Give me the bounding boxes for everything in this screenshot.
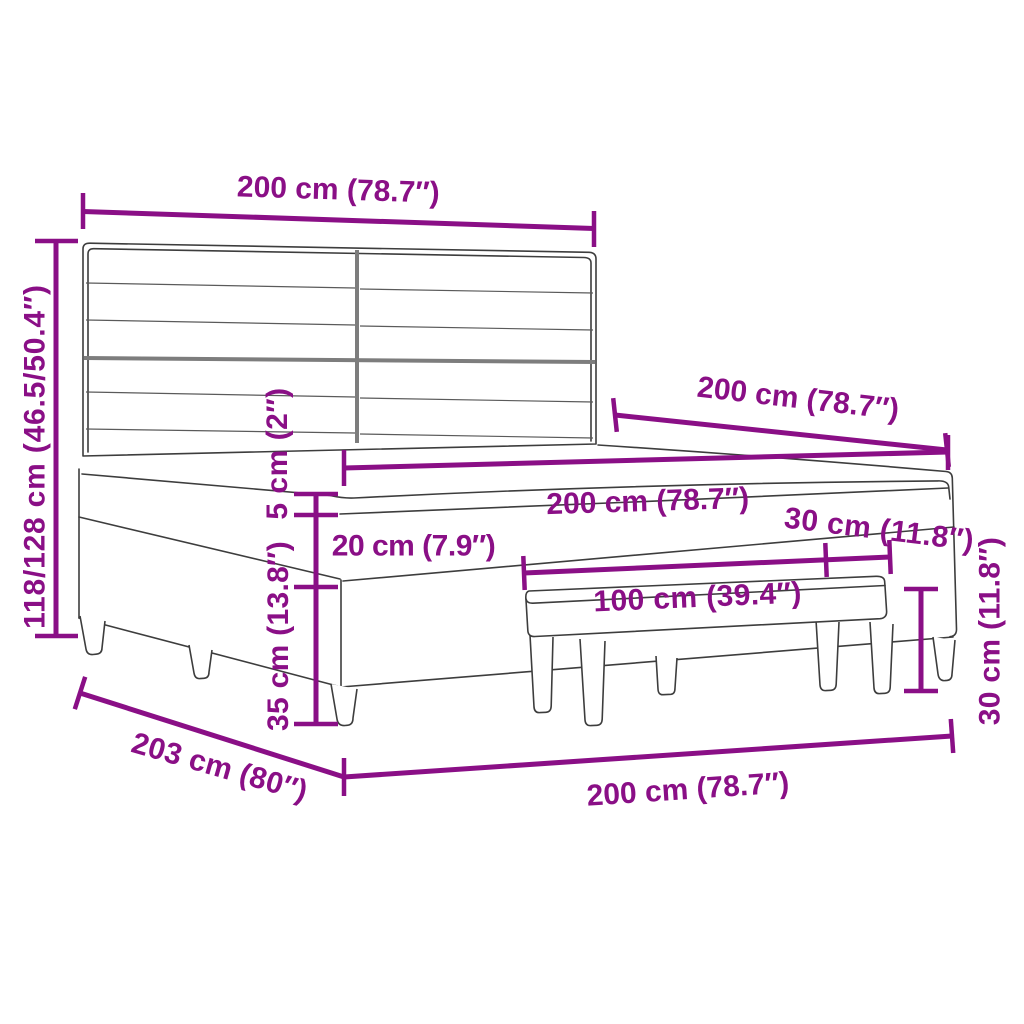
svg-text:20 cm (7.9″): 20 cm (7.9″) [332,530,495,563]
svg-text:30 cm (11.8″): 30 cm (11.8″) [974,537,1007,725]
svg-text:35 cm (13.8″): 35 cm (13.8″) [262,541,295,731]
svg-text:5 cm (2″): 5 cm (2″) [261,387,294,519]
svg-text:200 cm (78.7″): 200 cm (78.7″) [236,170,440,209]
svg-text:118/128 cm (46.5/50.4″): 118/128 cm (46.5/50.4″) [19,284,52,629]
svg-text:200 cm (78.7″): 200 cm (78.7″) [546,482,750,521]
